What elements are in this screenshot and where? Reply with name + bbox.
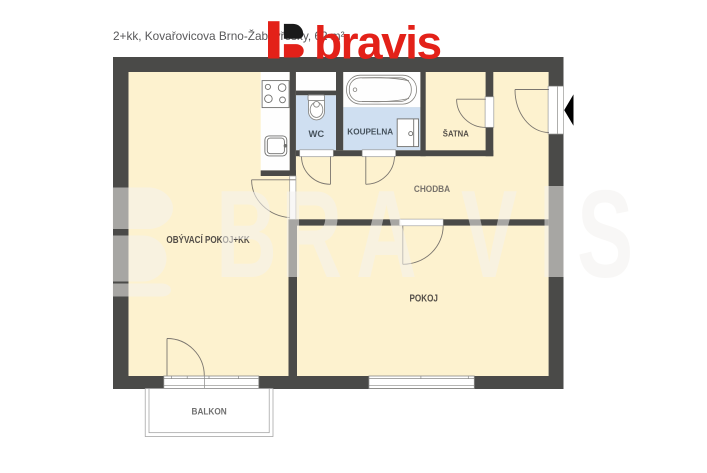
svg-text:BALKON: BALKON [192, 407, 227, 417]
svg-text:bravis: bravis [314, 17, 441, 65]
svg-text:CHODBA: CHODBA [414, 184, 451, 194]
svg-text:KOUPELNA: KOUPELNA [347, 127, 393, 137]
svg-text:ŠATNA: ŠATNA [443, 128, 469, 139]
svg-text:OBÝVACÍ POKOJ+KK: OBÝVACÍ POKOJ+KK [166, 234, 250, 246]
svg-text:POKOJ: POKOJ [410, 294, 438, 305]
svg-text:WC: WC [309, 128, 325, 139]
